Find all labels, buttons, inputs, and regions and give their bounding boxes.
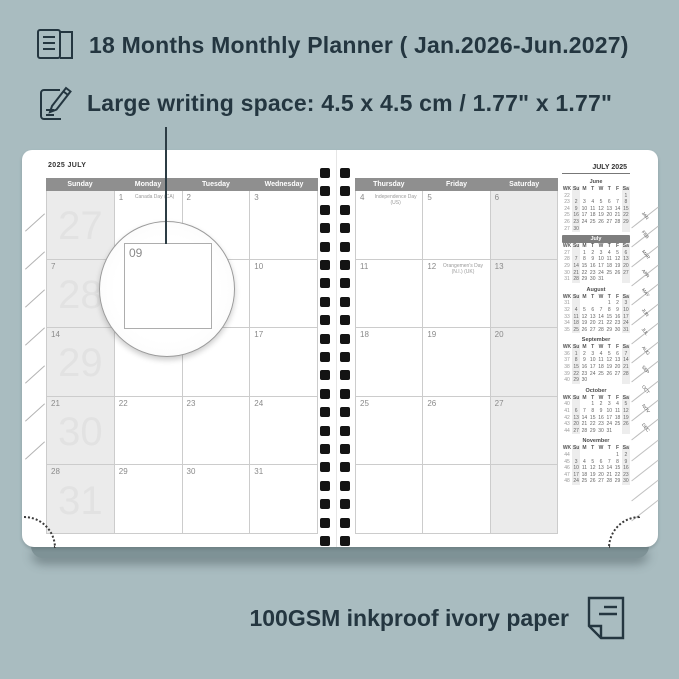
day-header-row: ThursdayFridaySaturday (355, 178, 558, 191)
mini-week-number: 44 (562, 452, 572, 459)
mini-day-header: T (589, 186, 597, 193)
mini-date (589, 226, 597, 233)
mini-date: 28 (622, 371, 630, 378)
calendar-cell: 26 (423, 397, 490, 466)
mini-week-number: 41 (562, 408, 572, 415)
mini-date: 29 (589, 428, 597, 435)
mini-date: 10 (622, 307, 630, 314)
mini-date: 11 (589, 206, 597, 213)
spiral-hole (320, 315, 330, 325)
mini-date: 27 (589, 327, 597, 334)
page-edge-mark (25, 327, 45, 345)
mini-calendar: AugustWKSuMTWTFSa31123324567891033111213… (562, 286, 630, 334)
mini-day-header: M (580, 395, 588, 402)
mini-date: 16 (613, 314, 621, 321)
mini-calendar-grid: WKSuMTWTFSa27123456287891011121329141516… (562, 243, 630, 283)
date-number: 7 (51, 262, 55, 271)
mini-date: 4 (580, 459, 588, 466)
mini-week-number: 24 (562, 206, 572, 213)
page-edge-mark (25, 365, 45, 383)
mini-date: 21 (613, 212, 621, 219)
mini-date (589, 193, 597, 200)
holiday-label: Orangemen's Day (N.I.) (UK) (438, 263, 487, 275)
mini-day-header: T (605, 445, 613, 452)
mini-day-header: WK (562, 445, 572, 452)
mini-week-number: 25 (562, 212, 572, 219)
mini-week-number: 32 (562, 307, 572, 314)
mini-date: 11 (580, 465, 588, 472)
mini-date: 11 (605, 256, 613, 263)
mini-week-number: 34 (562, 320, 572, 327)
spiral-hole (340, 278, 350, 288)
spiral-hole (320, 278, 330, 288)
mini-date: 23 (589, 270, 597, 277)
week-number: 29 (47, 332, 114, 396)
date-number: 12 (427, 262, 436, 271)
mini-date: 2 (622, 452, 630, 459)
spiral-hole (320, 518, 330, 528)
mini-date: 19 (597, 212, 605, 219)
mini-date: 31 (622, 327, 630, 334)
mini-date: 5 (622, 401, 630, 408)
spiral-hole (340, 168, 350, 178)
mini-day-header: T (605, 243, 613, 250)
mini-day-header: W (597, 186, 605, 193)
mini-date: 16 (589, 263, 597, 270)
mini-day-header: Su (572, 395, 580, 402)
paper-sheet-icon (585, 594, 627, 642)
mini-date: 3 (572, 459, 580, 466)
mini-calendar-title: July (562, 235, 630, 243)
mini-date: 14 (572, 263, 580, 270)
mini-date: 13 (605, 206, 613, 213)
mini-date: 30 (572, 226, 580, 233)
mini-date: 26 (605, 371, 613, 378)
mini-date: 28 (613, 219, 621, 226)
mini-day-header: Sa (622, 243, 630, 250)
mini-date (622, 428, 630, 435)
month-tab: SEP (630, 362, 660, 381)
calendar-cell: 6 (491, 191, 558, 260)
mini-date: 18 (580, 472, 588, 479)
mini-day-header: WK (562, 395, 572, 402)
mini-day-header: Su (572, 344, 580, 351)
mini-date (580, 300, 588, 307)
mini-calendar: JuneWKSuMTWTFSa2212323456782491011121314… (562, 178, 630, 232)
mini-week-number: 27 (562, 226, 572, 233)
mini-week-number: 39 (562, 371, 572, 378)
mini-day-header: F (613, 294, 621, 301)
mini-day-header: M (580, 445, 588, 452)
date-number: 17 (254, 330, 263, 339)
feature-writing-space-text: Large writing space: 4.5 x 4.5 cm / 1.77… (87, 90, 612, 117)
page-edge-mark (25, 213, 45, 231)
month-tab: JUL (630, 324, 660, 343)
page-gutter (336, 150, 337, 547)
holiday-label: Canada Day (CA) (130, 194, 180, 200)
mini-date: 7 (613, 199, 621, 206)
date-number: 31 (254, 467, 263, 476)
calendar-cell: 18 (356, 328, 423, 397)
date-number: 24 (254, 399, 263, 408)
mini-day-header: WK (562, 344, 572, 351)
spiral-hole (320, 426, 330, 436)
calendar-cell: 20 (491, 328, 558, 397)
mini-date: 15 (613, 465, 621, 472)
mini-date: 8 (605, 307, 613, 314)
mini-date (605, 452, 613, 459)
mini-day-header: WK (562, 294, 572, 301)
calendar-cell: 12Orangemen's Day (N.I.) (UK) (423, 260, 490, 329)
mini-date: 15 (622, 206, 630, 213)
mini-date: 4 (572, 307, 580, 314)
calendar-cell (423, 465, 490, 534)
mini-week-number: 47 (562, 472, 572, 479)
mini-date: 24 (622, 320, 630, 327)
mini-day-header: T (605, 344, 613, 351)
mini-day-header: T (589, 395, 597, 402)
mini-date: 31 (597, 276, 605, 283)
mini-date: 18 (605, 263, 613, 270)
mini-date: 31 (605, 428, 613, 435)
mini-date: 12 (597, 206, 605, 213)
mini-date: 21 (580, 421, 588, 428)
mini-date (613, 377, 621, 384)
date-number: 3 (254, 193, 258, 202)
spiral-hole (320, 223, 330, 233)
feature-row-writing-space: Large writing space: 4.5 x 4.5 cm / 1.77… (38, 84, 612, 122)
spiral-hole (320, 352, 330, 362)
mini-date: 6 (622, 250, 630, 257)
mini-date (572, 300, 580, 307)
mini-date: 23 (597, 421, 605, 428)
calendar-cell: 13 (491, 260, 558, 329)
mini-date (572, 401, 580, 408)
mini-calendar: JulyWKSuMTWTFSa2712345628789101112132914… (562, 235, 630, 283)
mini-date: 11 (613, 408, 621, 415)
mini-date (605, 226, 613, 233)
mini-date: 7 (597, 307, 605, 314)
date-number: 26 (427, 399, 436, 408)
date-number: 13 (495, 262, 504, 271)
month-tab: JUN (630, 305, 660, 324)
mini-date: 5 (613, 250, 621, 257)
mini-date (613, 276, 621, 283)
mini-day-header: T (605, 186, 613, 193)
sidebar-title: JULY 2025 (562, 164, 630, 171)
mini-date: 10 (597, 256, 605, 263)
mini-week-number: 29 (562, 263, 572, 270)
date-number: 29 (119, 467, 128, 476)
mini-date (597, 300, 605, 307)
mini-date: 11 (572, 314, 580, 321)
mini-date: 22 (622, 212, 630, 219)
mini-date: 4 (597, 351, 605, 358)
mini-date: 27 (572, 428, 580, 435)
mini-date: 20 (605, 212, 613, 219)
page-edge-mark (25, 403, 45, 421)
mini-date (622, 226, 630, 233)
mini-week-number: 40 (562, 377, 572, 384)
mini-date: 9 (622, 459, 630, 466)
mini-date: 12 (622, 408, 630, 415)
page-edge-line (631, 480, 658, 502)
mini-date: 1 (589, 401, 597, 408)
date-number: 11 (360, 262, 368, 271)
spiral-hole (320, 242, 330, 252)
pencil-note-icon (38, 84, 74, 122)
date-number: 30 (187, 467, 196, 476)
mini-date: 30 (622, 478, 630, 485)
mini-date: 1 (580, 250, 588, 257)
calendar-cell: 17 (250, 328, 318, 397)
mini-date: 30 (589, 276, 597, 283)
mini-date: 14 (580, 415, 588, 422)
mini-date: 15 (589, 415, 597, 422)
mini-date: 24 (580, 219, 588, 226)
mini-week-number: 40 (562, 401, 572, 408)
mini-date: 27 (597, 478, 605, 485)
mini-date: 6 (597, 459, 605, 466)
mini-day-header: F (613, 344, 621, 351)
spiral-hole (340, 518, 350, 528)
page-edge-mark (25, 289, 45, 307)
mini-date (613, 226, 621, 233)
mini-day-header: WK (562, 243, 572, 250)
mini-date: 28 (572, 276, 580, 283)
mini-day-header: W (597, 395, 605, 402)
mini-date: 29 (622, 219, 630, 226)
mini-date: 30 (613, 327, 621, 334)
mini-date: 19 (613, 263, 621, 270)
mini-week-number: 30 (562, 270, 572, 277)
mini-date: 14 (622, 357, 630, 364)
spiral-hole (320, 462, 330, 472)
mini-date: 3 (589, 351, 597, 358)
mini-calendar-grid: WKSuMTWTFSa36123456737891011121314381516… (562, 344, 630, 384)
mini-day-header: Sa (622, 395, 630, 402)
mini-date: 26 (613, 270, 621, 277)
calendar-cell: 2914 (47, 328, 115, 397)
week-number: 27 (47, 195, 114, 259)
mini-day-header: F (613, 395, 621, 402)
mini-date: 14 (605, 465, 613, 472)
mini-day-header: F (613, 243, 621, 250)
day-header-row: SundayMondayTuesdayWednesday (46, 178, 318, 191)
date-number: 10 (254, 262, 263, 271)
spiral-hole (340, 481, 350, 491)
mini-date: 25 (613, 421, 621, 428)
date-number: 2 (187, 193, 191, 202)
mini-date: 7 (622, 351, 630, 358)
day-header: Tuesday (182, 181, 250, 188)
mini-date: 3 (580, 199, 588, 206)
mini-date: 25 (572, 327, 580, 334)
mini-date: 21 (597, 320, 605, 327)
mini-date: 17 (580, 212, 588, 219)
day-header: Friday (423, 181, 491, 188)
month-tab: JAN (630, 208, 660, 227)
mini-date: 2 (589, 250, 597, 257)
mini-date (580, 401, 588, 408)
month-tab: MAR (630, 247, 660, 266)
mini-week-number: 27 (562, 250, 572, 257)
spiral-hole (320, 499, 330, 509)
mini-week-number: 33 (562, 314, 572, 321)
mini-date: 29 (580, 276, 588, 283)
mini-date: 21 (572, 270, 580, 277)
date-number: 22 (119, 399, 128, 408)
mini-date: 18 (572, 320, 580, 327)
magnified-date: 09 (129, 246, 142, 260)
mini-date: 23 (580, 371, 588, 378)
spiral-hole (340, 462, 350, 472)
mini-day-header: Su (572, 294, 580, 301)
calendar-cell: 24 (250, 397, 318, 466)
calendar-cell: 22 (115, 397, 183, 466)
mini-date: 14 (613, 206, 621, 213)
mini-date (613, 428, 621, 435)
mini-date: 27 (622, 270, 630, 277)
day-header: Wednesday (250, 181, 318, 188)
mini-date: 12 (589, 465, 597, 472)
open-book-icon (36, 28, 76, 62)
calendar-cell: 27 (47, 191, 115, 260)
right-month-grid: ThursdayFridaySaturday4Independence Day … (355, 178, 558, 534)
mini-date: 8 (622, 199, 630, 206)
mini-date: 20 (589, 320, 597, 327)
month-tab: NOV (630, 401, 660, 420)
mini-calendar-grid: WKSuMTWTFSa40123454167891011124213141516… (562, 395, 630, 435)
mini-date (589, 452, 597, 459)
magnifier-circle: 09 (99, 221, 235, 357)
spiral-hole (320, 168, 330, 178)
mini-date: 23 (572, 219, 580, 226)
spiral-hole (340, 223, 350, 233)
mini-date: 15 (580, 263, 588, 270)
mini-week-number: 36 (562, 351, 572, 358)
calendar-cell: 3128 (47, 465, 115, 534)
mini-day-header: W (597, 243, 605, 250)
month-tab: DEC (630, 420, 660, 439)
mini-date: 16 (572, 212, 580, 219)
date-number: 4 (360, 193, 364, 202)
mini-date: 19 (622, 415, 630, 422)
mini-date: 27 (613, 371, 621, 378)
spiral-hole (320, 481, 330, 491)
mini-week-number: 22 (562, 193, 572, 200)
date-number: 20 (495, 330, 504, 339)
mini-day-header: W (597, 294, 605, 301)
calendar-cell: 19 (423, 328, 490, 397)
month-tab: APR (630, 266, 660, 285)
mini-date: 18 (597, 364, 605, 371)
day-header: Monday (114, 181, 182, 188)
mini-date (572, 193, 580, 200)
mini-date: 1 (605, 300, 613, 307)
mini-date (589, 300, 597, 307)
mini-date (580, 226, 588, 233)
mini-day-header: T (589, 344, 597, 351)
mini-date: 6 (589, 307, 597, 314)
spiral-hole (340, 407, 350, 417)
mini-week-number: 31 (562, 276, 572, 283)
spiral-hole (320, 260, 330, 270)
mini-date: 24 (605, 421, 613, 428)
mini-date (622, 377, 630, 384)
mini-date: 4 (613, 401, 621, 408)
mini-calendar-title: June (562, 178, 630, 186)
mini-date (580, 452, 588, 459)
corner-stitch-arc-right (608, 516, 640, 548)
spiral-hole (340, 444, 350, 454)
mini-day-header: Sa (622, 294, 630, 301)
mini-date: 5 (589, 459, 597, 466)
mini-date: 8 (613, 459, 621, 466)
mini-date: 13 (589, 314, 597, 321)
mini-day-header: M (580, 344, 588, 351)
mini-date: 6 (572, 408, 580, 415)
date-number: 27 (495, 399, 504, 408)
mini-date: 24 (597, 270, 605, 277)
mini-date: 13 (597, 465, 605, 472)
spiral-hole (320, 186, 330, 196)
mini-day-header: M (580, 186, 588, 193)
spiral-hole (340, 186, 350, 196)
calendar-cell: 4Independence Day (US) (356, 191, 423, 260)
page-edge-mark (25, 441, 45, 459)
page-edge-line (631, 460, 658, 482)
mini-date: 28 (605, 478, 613, 485)
mini-day-header: F (613, 186, 621, 193)
mini-date: 11 (597, 357, 605, 364)
date-number: 1 (119, 193, 123, 202)
mini-date: 25 (580, 478, 588, 485)
mini-date: 22 (589, 421, 597, 428)
date-number: 6 (495, 193, 499, 202)
date-number: 25 (360, 399, 369, 408)
mini-week-number: 43 (562, 421, 572, 428)
mini-day-header: Sa (622, 186, 630, 193)
mini-date: 12 (580, 314, 588, 321)
spiral-hole (320, 407, 330, 417)
mini-date (597, 193, 605, 200)
mini-week-number: 23 (562, 199, 572, 206)
mini-date (597, 226, 605, 233)
calendar-cell: 27 (491, 397, 558, 466)
planner-bottom-edge (31, 546, 649, 558)
mini-calendar-grid: WKSuMTWTFSa22123234567824910111213141525… (562, 186, 630, 232)
spiral-hole (320, 205, 330, 215)
left-page-title: 2025 JULY (48, 162, 86, 169)
mini-week-number: 42 (562, 415, 572, 422)
mini-date: 15 (572, 364, 580, 371)
calendar-cell: 5 (423, 191, 490, 260)
mini-date: 17 (605, 415, 613, 422)
mini-week-number: 45 (562, 459, 572, 466)
mini-week-number: 28 (562, 256, 572, 263)
spiral-hole (320, 297, 330, 307)
mini-date: 10 (580, 206, 588, 213)
month-tab: AUG (630, 343, 660, 362)
day-header: Thursday (355, 181, 423, 188)
mini-week-number: 35 (562, 327, 572, 334)
mini-date: 22 (613, 472, 621, 479)
mini-day-header: T (605, 294, 613, 301)
spiral-hole (340, 242, 350, 252)
spiral-hole (340, 315, 350, 325)
mini-calendar-title: November (562, 437, 630, 445)
